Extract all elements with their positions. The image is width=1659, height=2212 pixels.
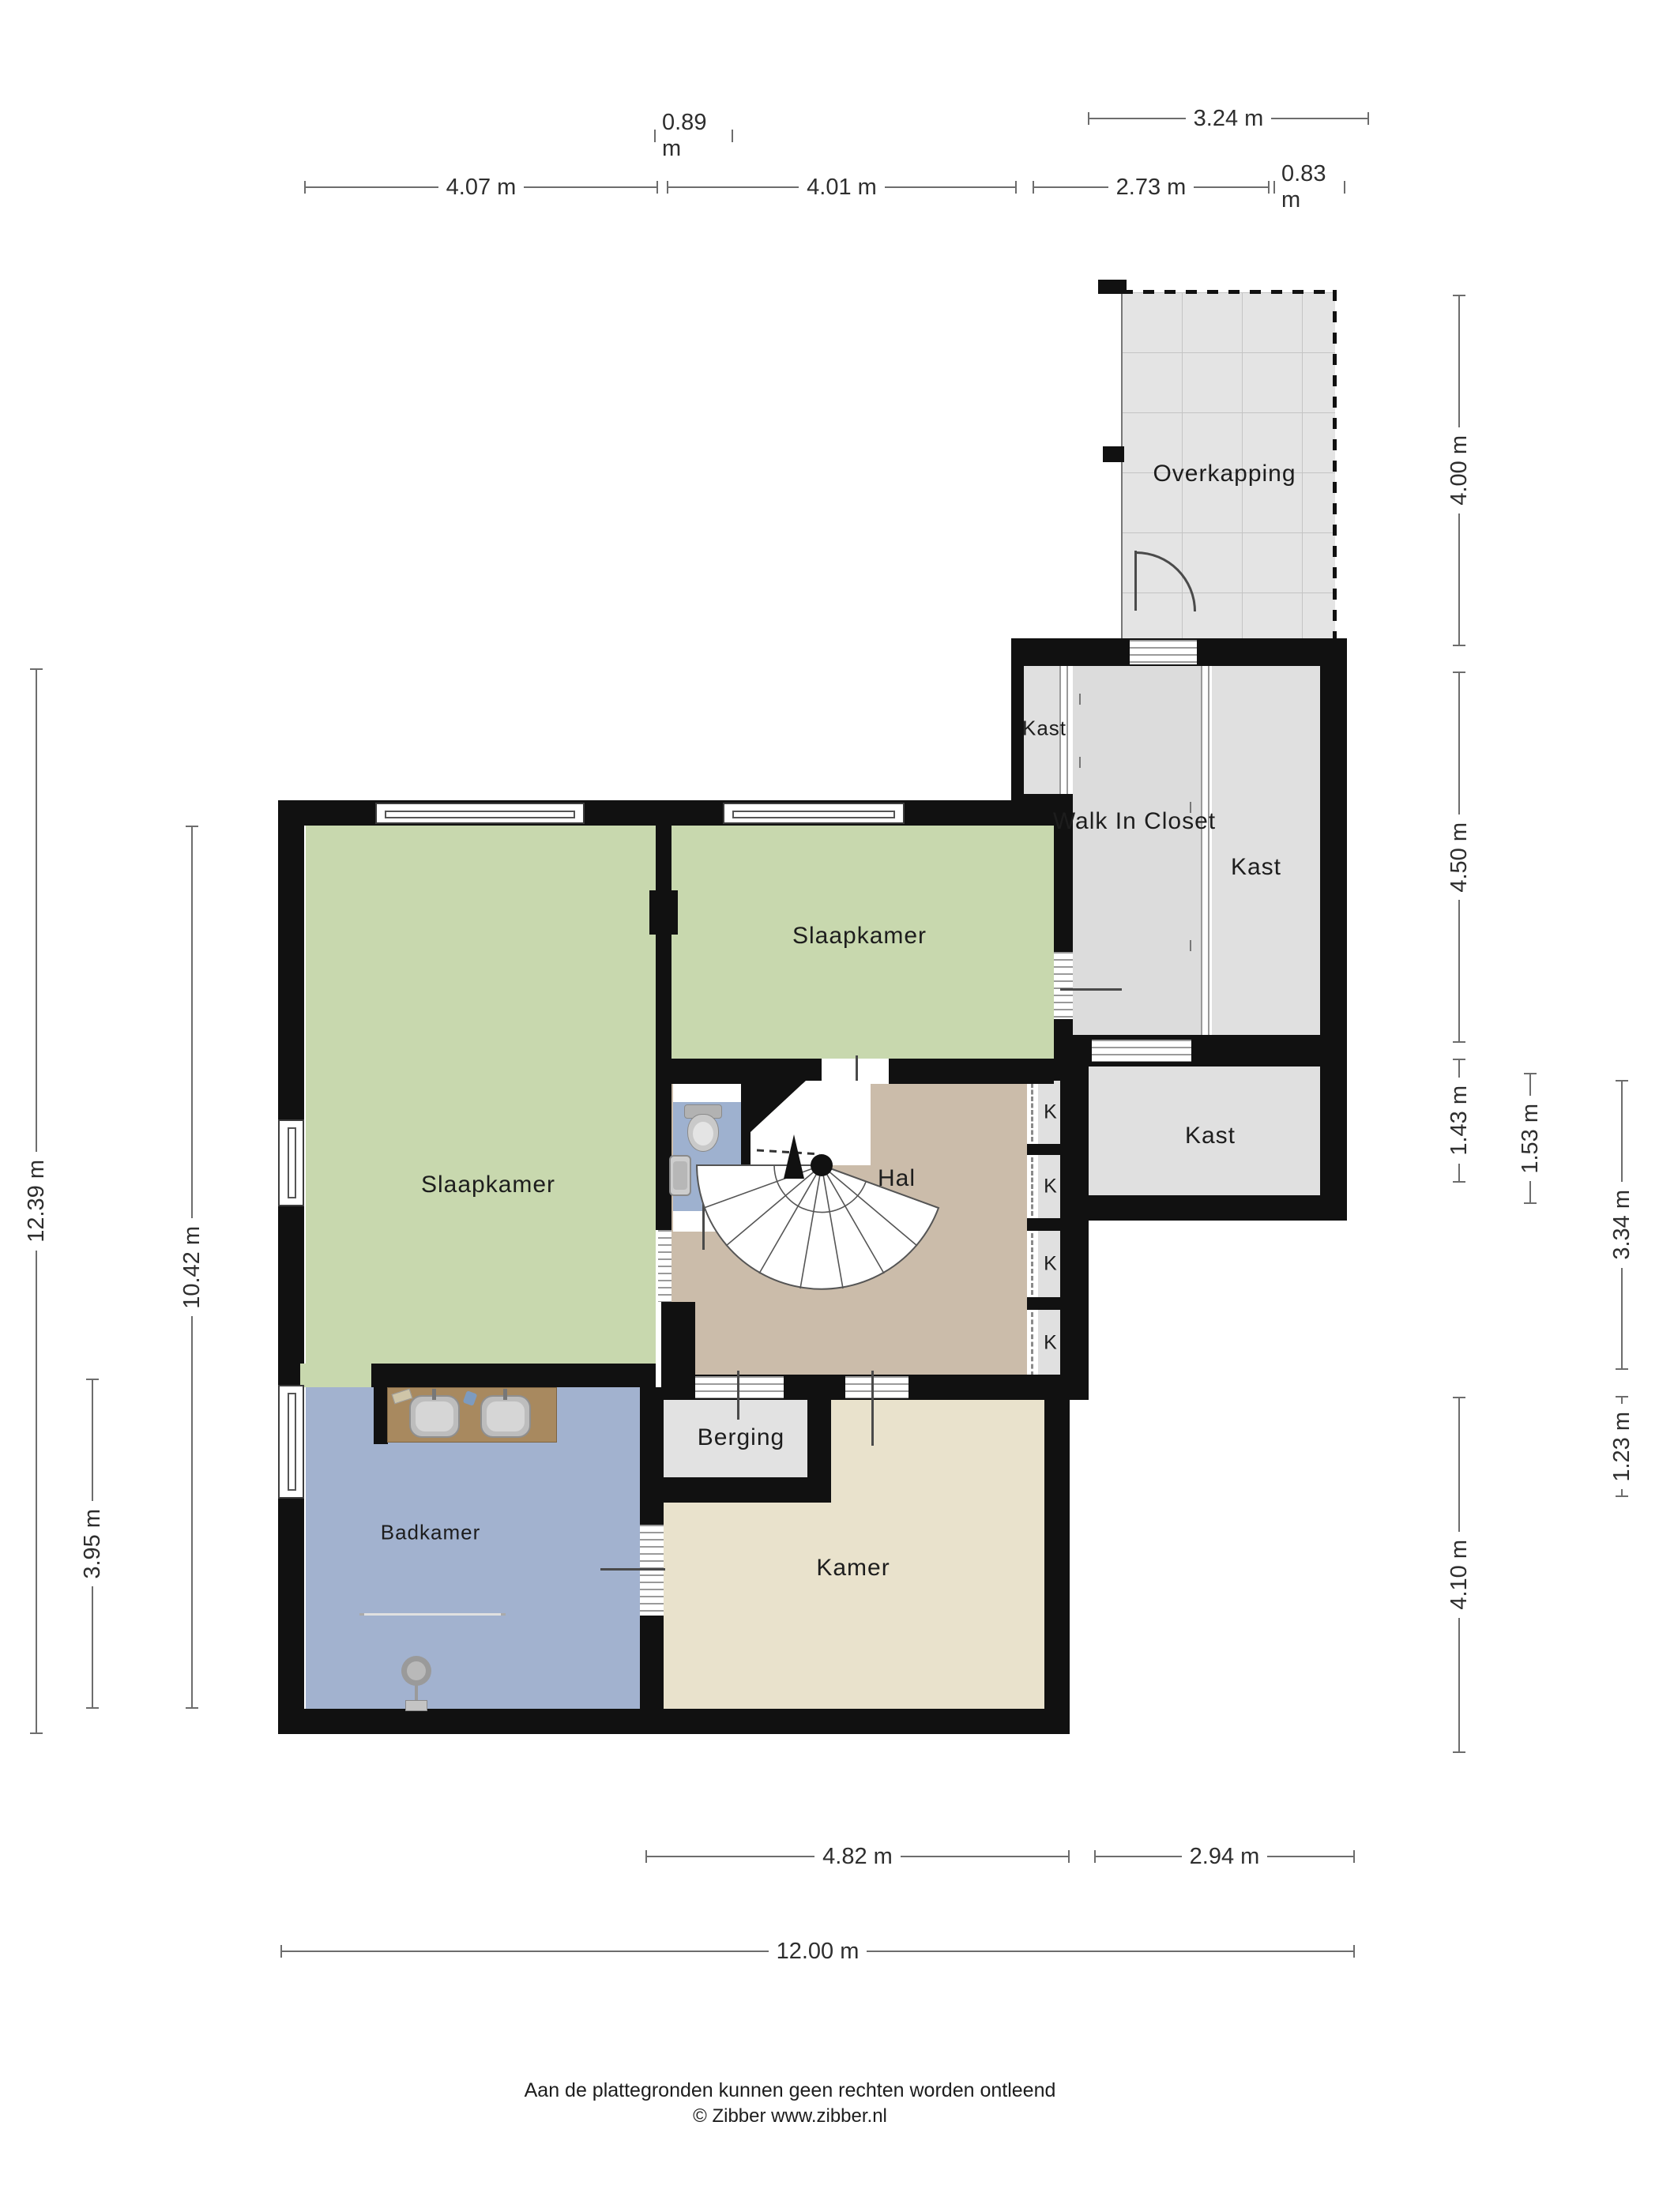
wall-main-right-lower (1044, 1400, 1070, 1734)
label-hal: Hal (878, 1165, 916, 1192)
dim-bottom-1200: 12.00 m (280, 1943, 1355, 1959)
window-top-1 (375, 803, 585, 824)
wall-bedroom-divider-pillar (649, 890, 678, 935)
opening-bedroom2-wic (1054, 952, 1073, 1019)
wall-vanity-stub (374, 1387, 388, 1444)
dim-left-395: 3.95 m (85, 1379, 100, 1709)
sink-right-basin (487, 1401, 525, 1431)
label-k4: K (1044, 1332, 1058, 1355)
wic-rail-mark-1 (1079, 694, 1081, 705)
label-berging: Berging (698, 1424, 784, 1451)
label-badkamer: Badkamer (381, 1521, 481, 1545)
dim-right-410: 4.10 m (1451, 1397, 1467, 1753)
doorline-bedroom2-wic (1060, 988, 1122, 991)
label-overkapping: Overkapping (1153, 461, 1296, 487)
dim-top-083: 0.83 m (1273, 179, 1345, 195)
k-closet-3-door (1027, 1231, 1038, 1297)
toilet-seat (693, 1122, 713, 1145)
wall-k-sep2 (1027, 1218, 1064, 1231)
wic-rail-mark-4 (1190, 940, 1191, 951)
wall-badkamer-top-stub (280, 1364, 300, 1387)
wall-k-sep1 (1027, 1144, 1064, 1155)
wall-kast-lower-bottom (1064, 1195, 1347, 1221)
overkapping-dashed-right (1333, 290, 1337, 640)
doorline-berging (737, 1371, 739, 1420)
entry-door-opening (1130, 640, 1197, 664)
label-kast-right: Kast (1231, 854, 1281, 881)
wic-kast-divider (1201, 666, 1212, 1035)
dim-right-334: 3.34 m (1614, 1080, 1630, 1370)
label-slaapkamer-top: Slaapkamer (792, 923, 927, 950)
room-slaapkamer-left-floor (306, 826, 656, 1364)
dim-right-143: 1.43 m (1451, 1059, 1467, 1183)
sink-right-faucet (503, 1389, 507, 1400)
label-slaapkamer-left: Slaapkamer (421, 1172, 555, 1198)
wall-k-sep3 (1027, 1297, 1064, 1310)
room-walk-in-closet-floor (1073, 666, 1201, 1035)
dim-bottom-482: 4.82 m (645, 1849, 1070, 1864)
dim-top-324: 3.24 m (1088, 111, 1369, 126)
doorline-kamer (871, 1371, 874, 1446)
wall-k-top (1027, 1059, 1064, 1081)
k-closet-4-door (1027, 1310, 1038, 1379)
sliding-door-wic-kast-lower (1092, 1040, 1191, 1062)
sink-left-faucet (432, 1389, 436, 1400)
window-top-2 (723, 803, 905, 824)
label-k1: K (1044, 1101, 1058, 1124)
opening-hal-kamer (845, 1376, 908, 1398)
dim-top-089: 0.89 m (654, 128, 733, 144)
overkapping-left-edge (1121, 292, 1123, 638)
k-closet-1-door (1027, 1081, 1038, 1144)
dim-right-400: 4.00 m (1451, 295, 1467, 646)
dim-right-153: 1.53 m (1522, 1073, 1538, 1204)
opening-slaapkamer-badkamer (300, 1364, 371, 1387)
pocket-door-slaapkamer-left-hal (658, 1230, 671, 1302)
dim-right-450: 4.50 m (1451, 671, 1467, 1043)
label-kamer: Kamer (816, 1555, 890, 1582)
room-kast-right-floor (1212, 666, 1320, 1035)
label-walk-in-closet: Walk In Closet (1053, 808, 1216, 835)
wic-rail-mark-2 (1079, 757, 1081, 768)
wall-badkamer-top (371, 1364, 656, 1387)
room-kamer-floor-upper (831, 1400, 1044, 1503)
overkapping-dashed-top (1122, 290, 1337, 294)
dim-left-1042: 10.42 m (184, 826, 200, 1709)
toilet-sink-basin (673, 1161, 687, 1190)
wall-main-bottom (280, 1709, 1070, 1734)
dim-top-273: 2.73 m (1033, 179, 1270, 195)
wall-berging-bottom (640, 1477, 831, 1503)
k-closet-2-door (1027, 1155, 1038, 1218)
dim-bottom-294: 2.94 m (1094, 1849, 1355, 1864)
spiral-staircase (687, 1066, 972, 1311)
overkapping-wall-stub-mid (1103, 446, 1124, 462)
shower-drain (405, 1700, 427, 1711)
wall-block-right (1320, 638, 1347, 1221)
room-kamer-floor-lower (664, 1503, 1044, 1709)
overkapping-wall-stub-top (1098, 280, 1127, 294)
window-left-bedroom (278, 1119, 304, 1206)
towel-bar (359, 1613, 506, 1616)
dim-top-407: 4.07 m (304, 179, 658, 195)
label-kast-lower: Kast (1185, 1123, 1236, 1149)
footer-copyright: © Zibber www.zibber.nl (693, 2105, 887, 2127)
footer-disclaimer: Aan de plattegronden kunnen geen rechten… (525, 2079, 1056, 2102)
wall-main-left (278, 800, 304, 1734)
label-k3: K (1044, 1253, 1058, 1276)
dim-top-401: 4.01 m (667, 179, 1017, 195)
label-kast-small: Kast (1022, 717, 1066, 741)
sink-left-basin (416, 1401, 453, 1431)
dim-right-123: 1.23 m (1614, 1396, 1630, 1497)
window-left-badkamer (278, 1385, 304, 1499)
dim-left-1239: 12.39 m (28, 668, 44, 1734)
doorline-badkamer (600, 1568, 665, 1571)
label-k2: K (1044, 1176, 1058, 1198)
shower-head-inner (407, 1661, 426, 1680)
floor-plan: Overkapping Kast Walk In Closet Kast Kas… (0, 0, 1659, 2212)
opening-hal-berging (695, 1376, 784, 1398)
